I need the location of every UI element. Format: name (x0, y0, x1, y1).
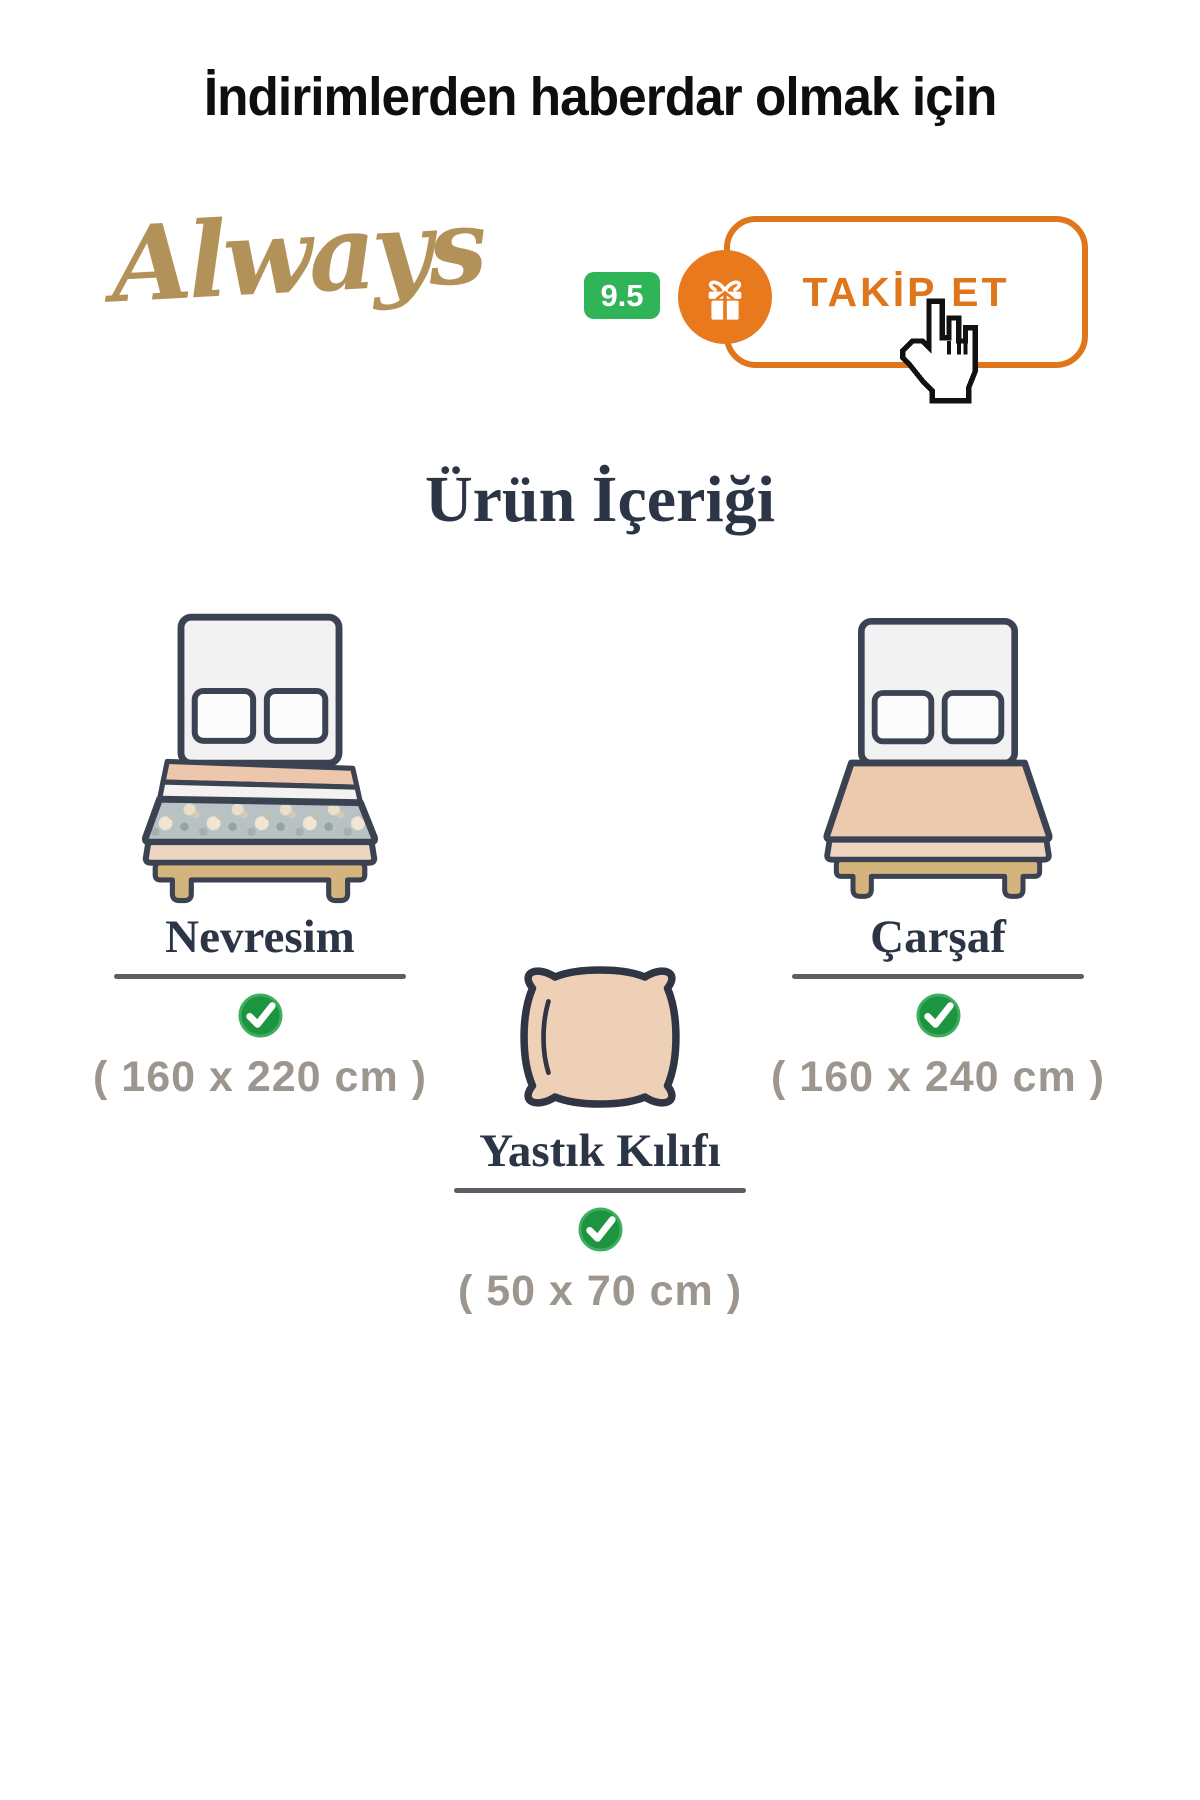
pillow-icon (506, 962, 694, 1112)
item-label-carsaf: Çarşaf (768, 910, 1108, 964)
divider (454, 1188, 746, 1193)
check-icon (915, 992, 962, 1039)
gift-icon-glyph (696, 268, 754, 326)
included-check-nevresim (90, 992, 430, 1044)
item-label-yastik: Yastık Kılıfı (430, 1124, 770, 1178)
bed-sheet-icon (813, 612, 1063, 904)
section-title: Ürün İçeriği (0, 462, 1200, 538)
hand-cursor-icon (896, 298, 982, 404)
included-check-yastik (430, 1206, 770, 1258)
seller-rating-value: 9.5 (600, 278, 643, 314)
header-title: İndirimlerden haberdar olmak için (0, 66, 1200, 128)
item-size-carsaf: ( 160 x 240 cm ) (768, 1053, 1108, 1102)
check-icon (237, 992, 284, 1039)
item-label-nevresim: Nevresim (90, 910, 430, 964)
bed-duvet-icon (131, 612, 389, 904)
check-icon (577, 1206, 624, 1253)
seller-rating-badge: 9.5 (584, 272, 660, 319)
brand-logo: Always (107, 172, 516, 383)
product-item-carsaf: Çarşaf ( 160 x 240 cm ) (768, 612, 1108, 1102)
item-size-yastik: ( 50 x 70 cm ) (430, 1267, 770, 1316)
divider (792, 974, 1084, 979)
divider (114, 974, 406, 979)
product-item-nevresim: Nevresim ( 160 x 220 cm ) (90, 612, 430, 1102)
product-item-yastik: Yastık Kılıfı ( 50 x 70 cm ) (430, 962, 770, 1316)
product-info-image: İndirimlerden haberdar olmak için Always… (0, 0, 1200, 1800)
header-title-text: İndirimlerden haberdar olmak için (204, 66, 997, 128)
included-check-carsaf (768, 992, 1108, 1044)
item-size-nevresim: ( 160 x 220 cm ) (90, 1053, 430, 1102)
gift-icon (678, 250, 772, 344)
